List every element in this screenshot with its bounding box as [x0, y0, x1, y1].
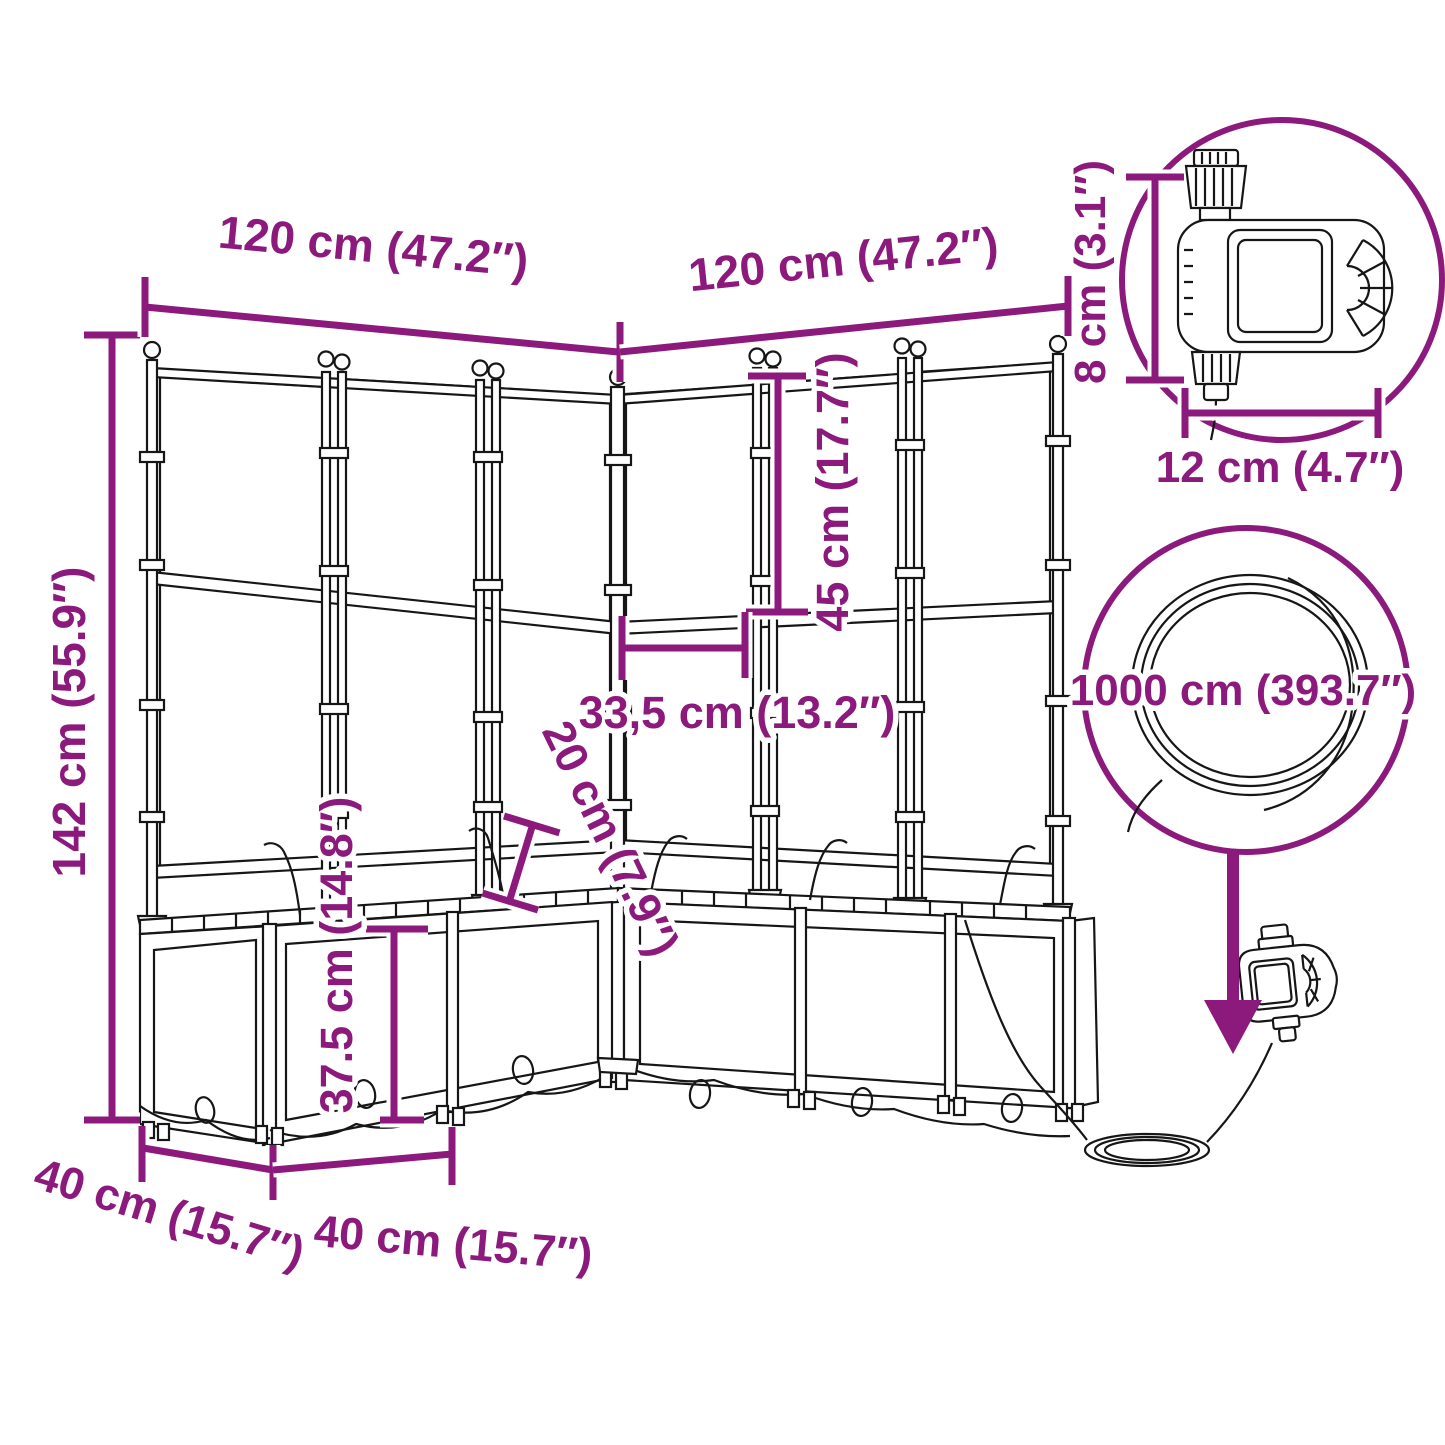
planter-box-end-face [140, 926, 270, 1144]
ball-finial-icon [750, 349, 765, 364]
dimension-top-left-width [145, 277, 620, 382]
dimension-label-timer-width: 12 cm (4.7″) [1156, 443, 1405, 492]
diagram-canvas: 120 cm (47.2″) 120 cm (47.2″) 142 cm (55… [0, 0, 1445, 1445]
dimension-label-total-height: 142 cm (55.9″) [43, 567, 95, 878]
ball-finial-icon [144, 342, 160, 358]
timer-detail-circle [1122, 120, 1442, 440]
dimension-diagram: 120 cm (47.2″) 120 cm (47.2″) 142 cm (55… [0, 0, 1445, 1445]
ball-finial-icon [473, 361, 488, 376]
water-timer-icon [1235, 920, 1343, 1045]
trellis-panel [160, 377, 326, 871]
dimension-label-top-right-width: 120 cm (47.2″) [686, 217, 1001, 301]
dimension-label-hose-length: 1000 cm (393.7″) [1070, 666, 1416, 715]
ball-finial-icon [1050, 336, 1066, 352]
dimension-top-right-width [620, 276, 1068, 352]
ball-finial-icon [319, 352, 334, 367]
ball-finial-icon [911, 342, 926, 357]
hose-coil-icon [1085, 1134, 1209, 1166]
ball-finial-icon [489, 364, 504, 379]
ball-finial-icon [895, 339, 910, 354]
dimension-label-panel-spacing: 33,5 cm (13.2″) [579, 687, 896, 738]
dimension-label-planter-height: 37.5 cm (14.8″) [311, 797, 362, 1114]
dimension-label-top-left-width: 120 cm (47.2″) [216, 206, 531, 287]
trellis-panel [342, 379, 480, 861]
ball-finial-icon [766, 352, 781, 367]
dimension-label-timer-height: 8 cm (3.1″) [1066, 160, 1115, 384]
ball-finial-icon [335, 355, 350, 370]
dimension-label-upper-trellis-height: 45 cm (17.7″) [807, 352, 858, 631]
dimension-label-front-module-width: 40 cm (15.7″) [312, 1205, 595, 1280]
